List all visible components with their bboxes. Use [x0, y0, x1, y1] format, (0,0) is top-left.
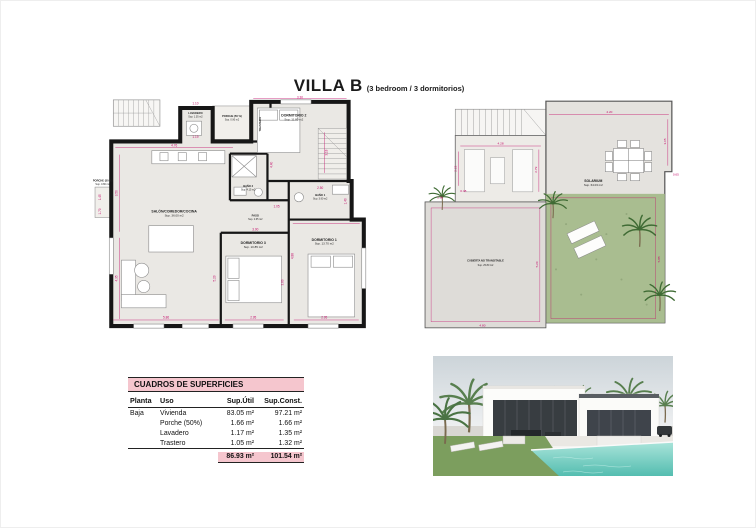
table-row: Baja Vivienda 83.05 m² 97.21 m²	[128, 408, 304, 419]
ground-floor-plan: 4.76 3.50 4.35 5.86 3.30 3.18 4.40 2.50 …	[93, 95, 377, 335]
svg-text:2.95: 2.95	[321, 316, 327, 320]
svg-text:1.10: 1.10	[192, 101, 198, 105]
roof-staircase	[455, 109, 546, 135]
exterior-staircase	[113, 100, 160, 126]
svg-text:1.19: 1.19	[192, 135, 198, 139]
room-sup: Sup. 2.65 m2	[248, 218, 263, 221]
room-sup: Sup. 11.80 m2	[284, 117, 303, 121]
roof-plan: 4.20 3.05 4.28 2.22 2.79 0.48 0.65 5.20 …	[420, 93, 692, 335]
svg-text:4.88: 4.88	[290, 253, 294, 259]
cell-planta	[128, 438, 158, 449]
svg-text:1.90: 1.90	[437, 195, 443, 199]
cell-sup-util: 1.05 m²	[218, 438, 256, 449]
column-header-sup-util: Sup.Útil	[218, 394, 256, 408]
cell-planta: Baja	[128, 408, 158, 419]
svg-text:3.30: 3.30	[297, 95, 303, 99]
room-sup: Sup. 64.03 m2	[584, 183, 603, 187]
cell-uso: Vivienda	[158, 408, 218, 419]
svg-text:5.20: 5.20	[535, 261, 539, 267]
svg-text:1.70: 1.70	[98, 208, 102, 214]
svg-text:2.22: 2.22	[453, 165, 457, 171]
room-sup: Sup. 10.85 m2	[244, 245, 263, 249]
solarium-grass	[546, 194, 665, 323]
svg-text:1.05: 1.05	[274, 204, 280, 208]
cell-sup-const: 1.35 m²	[256, 428, 304, 438]
table-header-row: Planta Uso Sup.Útil Sup.Const.	[128, 394, 304, 408]
cell-sup-util: 83.05 m²	[218, 408, 256, 419]
table-row: Trastero 1.05 m² 1.32 m²	[128, 438, 304, 449]
column-header-sup-const: Sup.Const.	[256, 394, 304, 408]
surface-table-title: CUADROS DE SUPERFICIES	[128, 377, 304, 392]
cell-sup-const: 97.21 m²	[256, 408, 304, 419]
cell-uso: Trastero	[158, 438, 218, 449]
svg-text:4.35: 4.35	[114, 275, 118, 281]
svg-text:4.20: 4.20	[606, 110, 612, 114]
room-sup: Sup. 36.00 m2	[165, 214, 184, 218]
svg-text:4.76: 4.76	[171, 143, 177, 147]
table-row: Lavadero 1.17 m² 1.35 m²	[128, 428, 304, 438]
column-header-planta: Planta	[128, 394, 158, 408]
room-label: PASO	[252, 214, 259, 218]
svg-text:4.80: 4.80	[479, 323, 485, 327]
cell-sup-const: 1.32 m²	[256, 438, 304, 449]
svg-text:5.85: 5.85	[657, 256, 661, 262]
cell-sup-const: 1.66 m²	[256, 418, 304, 428]
cell-sup-util: 1.17 m²	[218, 428, 256, 438]
cell-planta	[128, 428, 158, 438]
porch-top-area	[213, 106, 252, 139]
room-label: PORCHE (50 %)	[222, 114, 242, 118]
room-sup: Sup. 3.90 m2	[313, 198, 328, 201]
svg-text:3.00: 3.00	[252, 227, 258, 231]
svg-text:1.40: 1.40	[344, 198, 348, 204]
room-label: TRASTERO	[258, 117, 262, 131]
villa-render-photo	[433, 356, 673, 476]
room-label: CUBIERTA NO TRANSITABLE	[467, 258, 504, 262]
room-sup: Sup. 0.90 m2	[225, 119, 240, 122]
total-sup-const: 101.54 m²	[256, 452, 304, 463]
page-title: VILLA B	[294, 76, 363, 95]
room-sup: Sup. 0.80 m2	[95, 183, 110, 186]
cell-uso: Porche (50%)	[158, 418, 218, 428]
room-sup: Sup. 25.80 m2	[478, 264, 494, 267]
surface-table: CUADROS DE SUPERFICIES Planta Uso Sup.Út…	[128, 377, 304, 463]
column-header-uso: Uso	[158, 394, 218, 408]
room-sup: Sup. 13.70 m2	[315, 242, 334, 246]
interior-staircase	[318, 128, 346, 179]
page-subtitle: (3 bedroom / 3 dormitorios)	[367, 84, 465, 93]
svg-text:3.50: 3.50	[114, 190, 118, 196]
svg-text:2.79: 2.79	[534, 166, 538, 172]
svg-text:5.86: 5.86	[163, 316, 169, 320]
plan-sheet: VILLA B(3 bedroom / 3 dormitorios)	[0, 0, 756, 528]
table-total-row: 86.93 m² 101.54 m²	[128, 452, 304, 463]
cell-planta	[128, 418, 158, 428]
svg-text:4.40: 4.40	[270, 161, 274, 167]
room-sup: Sup. 1.35 m2	[188, 116, 203, 119]
table-row: Porche (50%) 1.66 m² 1.66 m²	[128, 418, 304, 428]
room-label: LAVADERO	[188, 111, 202, 115]
room-sup: Sup. 4.15 m2	[241, 189, 256, 192]
svg-text:3.18: 3.18	[324, 149, 328, 155]
total-sup-util: 86.93 m²	[218, 452, 256, 463]
svg-text:3.80: 3.80	[281, 279, 285, 285]
svg-text:4.28: 4.28	[498, 141, 504, 145]
cell-sup-util: 1.66 m²	[218, 418, 256, 428]
cell-uso: Lavadero	[158, 428, 218, 438]
svg-text:3.05: 3.05	[663, 138, 667, 144]
svg-text:5.20: 5.20	[213, 275, 217, 281]
svg-text:0.65: 0.65	[673, 173, 679, 177]
svg-text:2.50: 2.50	[317, 186, 323, 190]
svg-text:2.95: 2.95	[250, 316, 256, 320]
svg-text:0.48: 0.48	[460, 189, 466, 193]
svg-text:1.45: 1.45	[98, 194, 102, 200]
